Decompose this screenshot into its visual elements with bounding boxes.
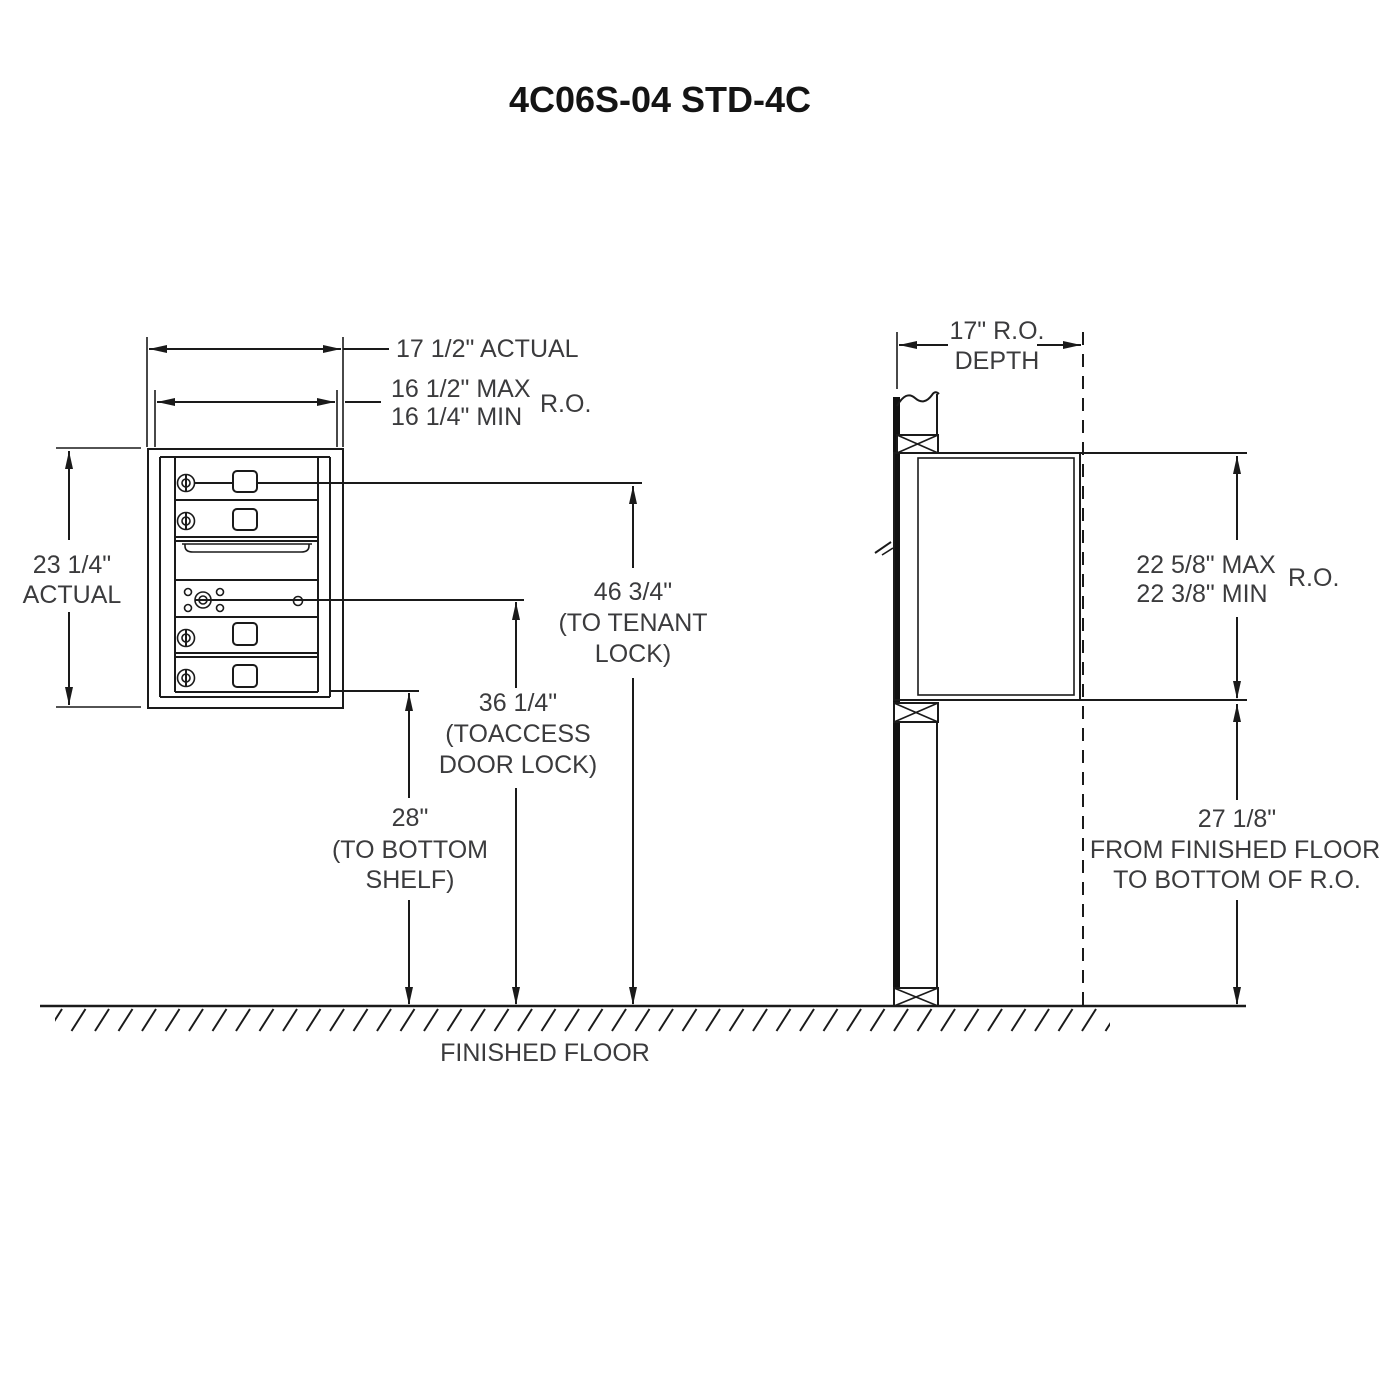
floor-ro-line3: TO BOTTOM OF R.O.: [1113, 866, 1361, 894]
hopper-tray: [185, 544, 309, 552]
tenant-door-1[interactable]: [178, 471, 258, 492]
tenant-lock-icon[interactable]: [178, 629, 195, 647]
tenant-lock-line2: (TO TENANT: [558, 609, 707, 637]
blocking-top: [897, 435, 938, 453]
side-view: 17" R.O. DEPTH: [875, 317, 1380, 1006]
front-view: 17 1/2" ACTUAL 16 1/2" MAX 16 1/4" MIN R…: [23, 335, 708, 1005]
mounting-hole: [217, 605, 224, 612]
access-lock-line2: (TOACCESS: [445, 720, 590, 748]
floor-to-ro-dimension: 27 1/8" FROM FINISHED FLOOR TO BOTTOM OF…: [1090, 704, 1380, 1005]
arrowhead-up: [65, 451, 73, 469]
tenant-lock-value: 46 3/4": [594, 578, 672, 606]
depth-dimension: 17" R.O. DEPTH: [897, 317, 1081, 389]
tenant-door-3[interactable]: [178, 623, 258, 647]
floor-hatching: [55, 1008, 1110, 1032]
arrowhead-right: [1063, 341, 1081, 349]
tenant-door-2[interactable]: [178, 509, 258, 530]
bottom-shelf-value: 28": [392, 804, 429, 832]
tenant-door-4[interactable]: [178, 665, 258, 687]
finished-floor-label: FINISHED FLOOR: [440, 1039, 650, 1067]
access-lock-line3: DOOR LOCK): [439, 751, 597, 779]
drawing-title: 4C06S-04 STD-4C: [509, 79, 811, 120]
bottom-shelf-line2: (TO BOTTOM: [332, 836, 488, 864]
wall-break-line: [897, 392, 939, 406]
arrowhead-down: [65, 687, 73, 705]
floor-ro-line2: FROM FINISHED FLOOR: [1090, 836, 1380, 864]
ro-height-dimension: 22 5/8" MAX 22 3/8" MIN R.O.: [1136, 456, 1339, 699]
card-holder: [233, 665, 257, 687]
mounting-clip-icon: [875, 542, 893, 555]
tenant-lock-icon[interactable]: [178, 474, 195, 492]
arrowhead-right: [317, 398, 335, 406]
height-actual-dimension: 23 1/4" ACTUAL: [23, 448, 141, 707]
height-ro-suffix: R.O.: [1288, 564, 1339, 592]
arrowhead-down: [512, 987, 520, 1005]
access-lock-dimension: 36 1/4" (TOACCESS DOOR LOCK): [439, 602, 597, 1005]
floor-ro-value: 27 1/8": [1198, 805, 1276, 833]
arrowhead-down: [1233, 681, 1241, 699]
height-actual-word: ACTUAL: [23, 581, 122, 609]
arrowhead-left: [157, 398, 175, 406]
access-door-lock-icon[interactable]: [195, 592, 211, 608]
height-ro-min: 22 3/8" MIN: [1136, 580, 1267, 608]
tenant-lock-icon[interactable]: [178, 512, 195, 530]
mounting-hole: [185, 605, 192, 612]
blocking-bottom: [894, 988, 938, 1006]
width-ro-max-label: 16 1/2" MAX: [391, 375, 531, 403]
installation-diagram: 4C06S-04 STD-4C 17 1/2" ACTUAL 16 1/2" M…: [0, 0, 1400, 1400]
front-width-dimensions: 17 1/2" ACTUAL 16 1/2" MAX 16 1/4" MIN R…: [147, 335, 591, 447]
width-ro-suffix-label: R.O.: [540, 390, 591, 418]
tenant-lock-icon[interactable]: [178, 669, 195, 687]
arrowhead-down: [1233, 987, 1241, 1005]
arrowhead-down: [629, 987, 637, 1005]
mounting-hole: [185, 589, 192, 596]
cabinet-outline: [894, 453, 1080, 700]
card-holder: [233, 509, 257, 530]
width-ro-min-label: 16 1/4" MIN: [391, 403, 522, 431]
depth-line2: DEPTH: [955, 347, 1040, 375]
arrowhead-down: [405, 987, 413, 1005]
cabinet-inner: [918, 458, 1074, 695]
height-actual-value: 23 1/4": [33, 551, 111, 579]
height-ro-max: 22 5/8" MAX: [1136, 551, 1276, 579]
card-holder: [233, 623, 257, 645]
access-lock-value: 36 1/4": [479, 689, 557, 717]
blocking-mid: [894, 703, 938, 722]
arrowhead-left: [149, 345, 167, 353]
arrowhead-left: [899, 341, 917, 349]
tenant-lock-line3: LOCK): [595, 640, 671, 668]
bottom-shelf-line3: SHELF): [366, 866, 455, 894]
outgoing-mail-hopper: [182, 544, 312, 552]
card-holder: [233, 471, 257, 492]
width-actual-label: 17 1/2" ACTUAL: [396, 335, 579, 363]
depth-line1: 17" R.O.: [949, 317, 1044, 345]
floor-assembly: FINISHED FLOOR: [40, 1006, 1246, 1067]
installation-drawing-page: 4C06S-04 STD-4C 17 1/2" ACTUAL 16 1/2" M…: [0, 0, 1400, 1400]
mounting-hole: [217, 589, 224, 596]
arrowhead-right: [323, 345, 341, 353]
